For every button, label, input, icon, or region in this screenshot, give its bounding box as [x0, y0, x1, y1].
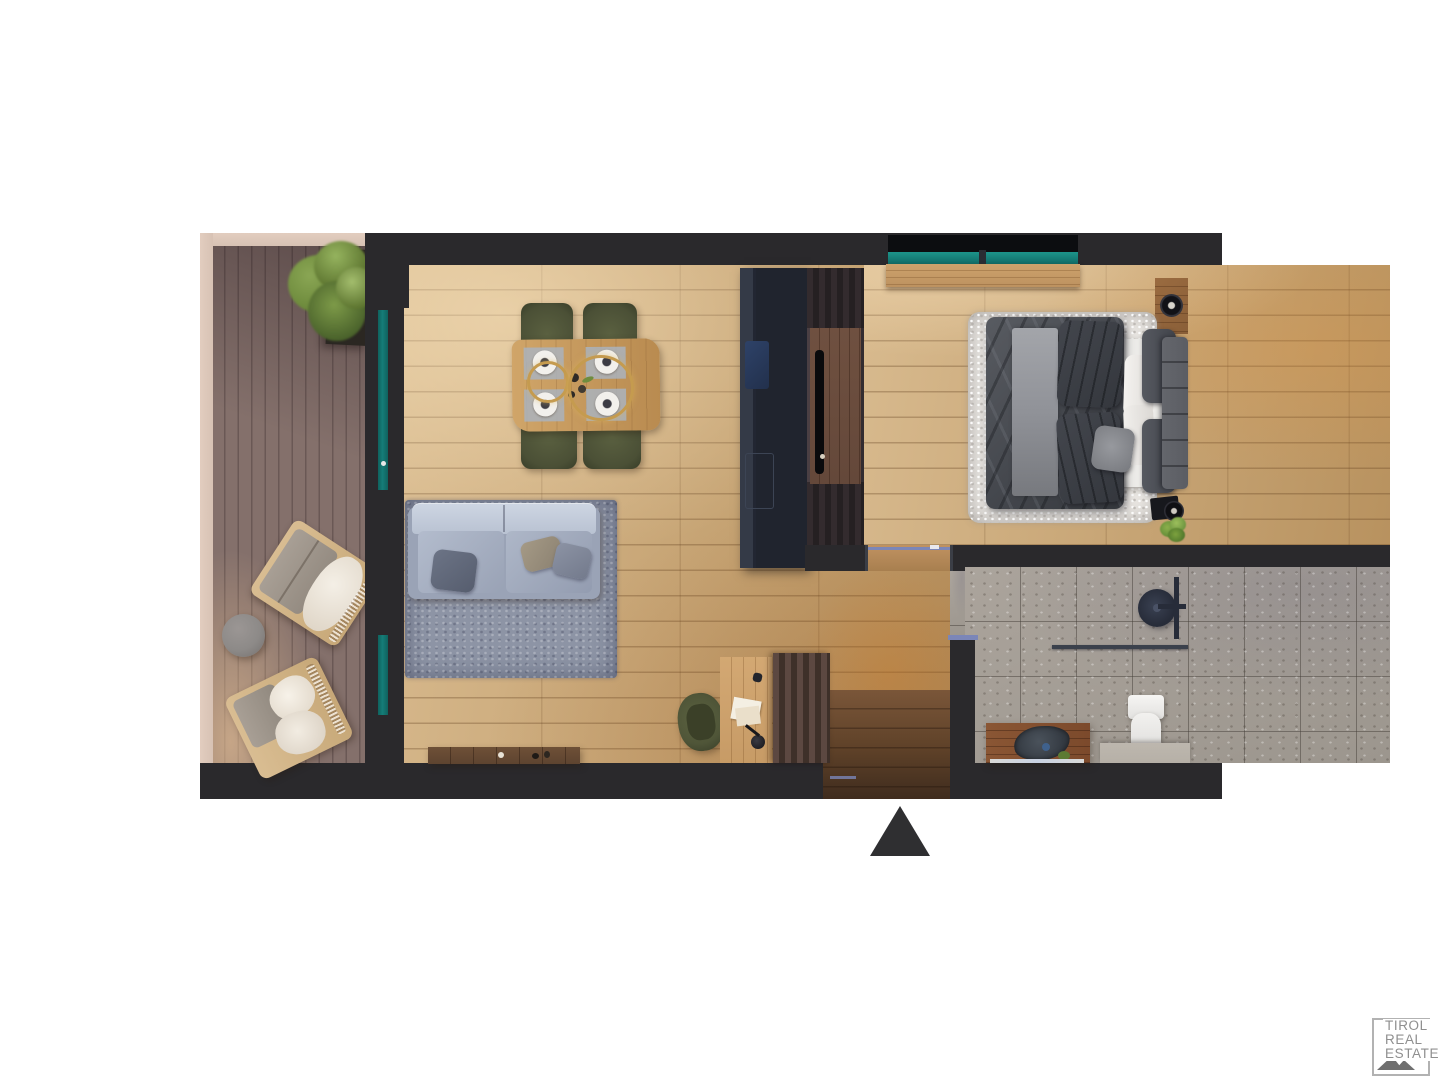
bench-decor	[498, 752, 504, 758]
papers	[735, 706, 761, 727]
window-mullion	[979, 250, 986, 265]
shower-glass-partition	[1052, 645, 1188, 649]
desk-lamp-arm	[745, 724, 760, 737]
headboard	[1162, 337, 1188, 489]
bed	[980, 313, 1192, 513]
desk-chair-seat	[685, 702, 718, 742]
towel	[990, 759, 1084, 763]
wall-stub	[404, 265, 409, 308]
bench-decor	[544, 751, 550, 758]
sideboard-bench	[428, 747, 580, 764]
faucet	[1042, 743, 1050, 751]
sofa-back-seam	[503, 505, 505, 532]
window-door-glass	[378, 635, 388, 715]
pendant-lamp-ring	[527, 361, 569, 403]
dining-set	[500, 293, 680, 483]
door-frame	[950, 545, 953, 571]
wardrobe-bottom	[807, 482, 864, 546]
logo-wordmark: TIROL REAL ESTATE	[1383, 1019, 1441, 1061]
floorplan-canvas: TIROL REAL ESTATE	[0, 0, 1441, 1080]
wardrobe-handle	[820, 454, 825, 459]
plant	[1160, 517, 1188, 543]
door-hinge-mark	[930, 545, 939, 549]
balcony-railing-left	[200, 233, 213, 763]
desk-item	[752, 672, 763, 683]
logo-line-1: TIROL	[1383, 1019, 1441, 1033]
mountain-peak	[1395, 1060, 1415, 1070]
wardrobe-tv-panel	[807, 268, 864, 546]
bedroom-door-opening	[868, 545, 950, 571]
sofa-pillow	[430, 548, 479, 593]
door-frame	[865, 545, 868, 571]
kitchen-cooktop	[745, 453, 774, 509]
tall-cabinet	[773, 653, 830, 763]
bed-runner	[1012, 328, 1058, 496]
window-sill-bench	[886, 264, 1080, 287]
vanity	[986, 723, 1090, 763]
kitchenette-unit	[740, 268, 807, 568]
shower-pipe	[1174, 577, 1179, 639]
entry-door-mark	[830, 776, 856, 779]
stone-bench	[1100, 743, 1190, 763]
wall-bathroom-west	[950, 640, 975, 763]
brand-logo: TIROL REAL ESTATE	[1372, 1016, 1441, 1078]
potted-tree	[278, 241, 378, 353]
side-table	[222, 614, 265, 657]
shower-arm	[1158, 604, 1186, 609]
door-handle	[381, 461, 386, 466]
entrance-arrow-icon	[870, 806, 930, 856]
bedroom-window	[888, 233, 1078, 287]
pendant-lamp-ring	[568, 355, 634, 421]
floor-plan	[200, 233, 1222, 799]
kitchen-sink	[745, 341, 769, 389]
logo-line-3: ESTATE	[1383, 1047, 1441, 1061]
bed-pillow-dark	[1057, 320, 1124, 408]
desk	[720, 657, 772, 763]
logo-line-2: REAL	[1383, 1033, 1441, 1047]
bed-throw-pillow	[1090, 424, 1136, 473]
bathroom-doorway	[950, 571, 965, 637]
bench-decor	[532, 753, 539, 759]
sofa	[408, 503, 600, 603]
wardrobe-top	[807, 268, 864, 328]
entry-floor	[823, 690, 950, 799]
plant-leaves	[1168, 528, 1185, 542]
